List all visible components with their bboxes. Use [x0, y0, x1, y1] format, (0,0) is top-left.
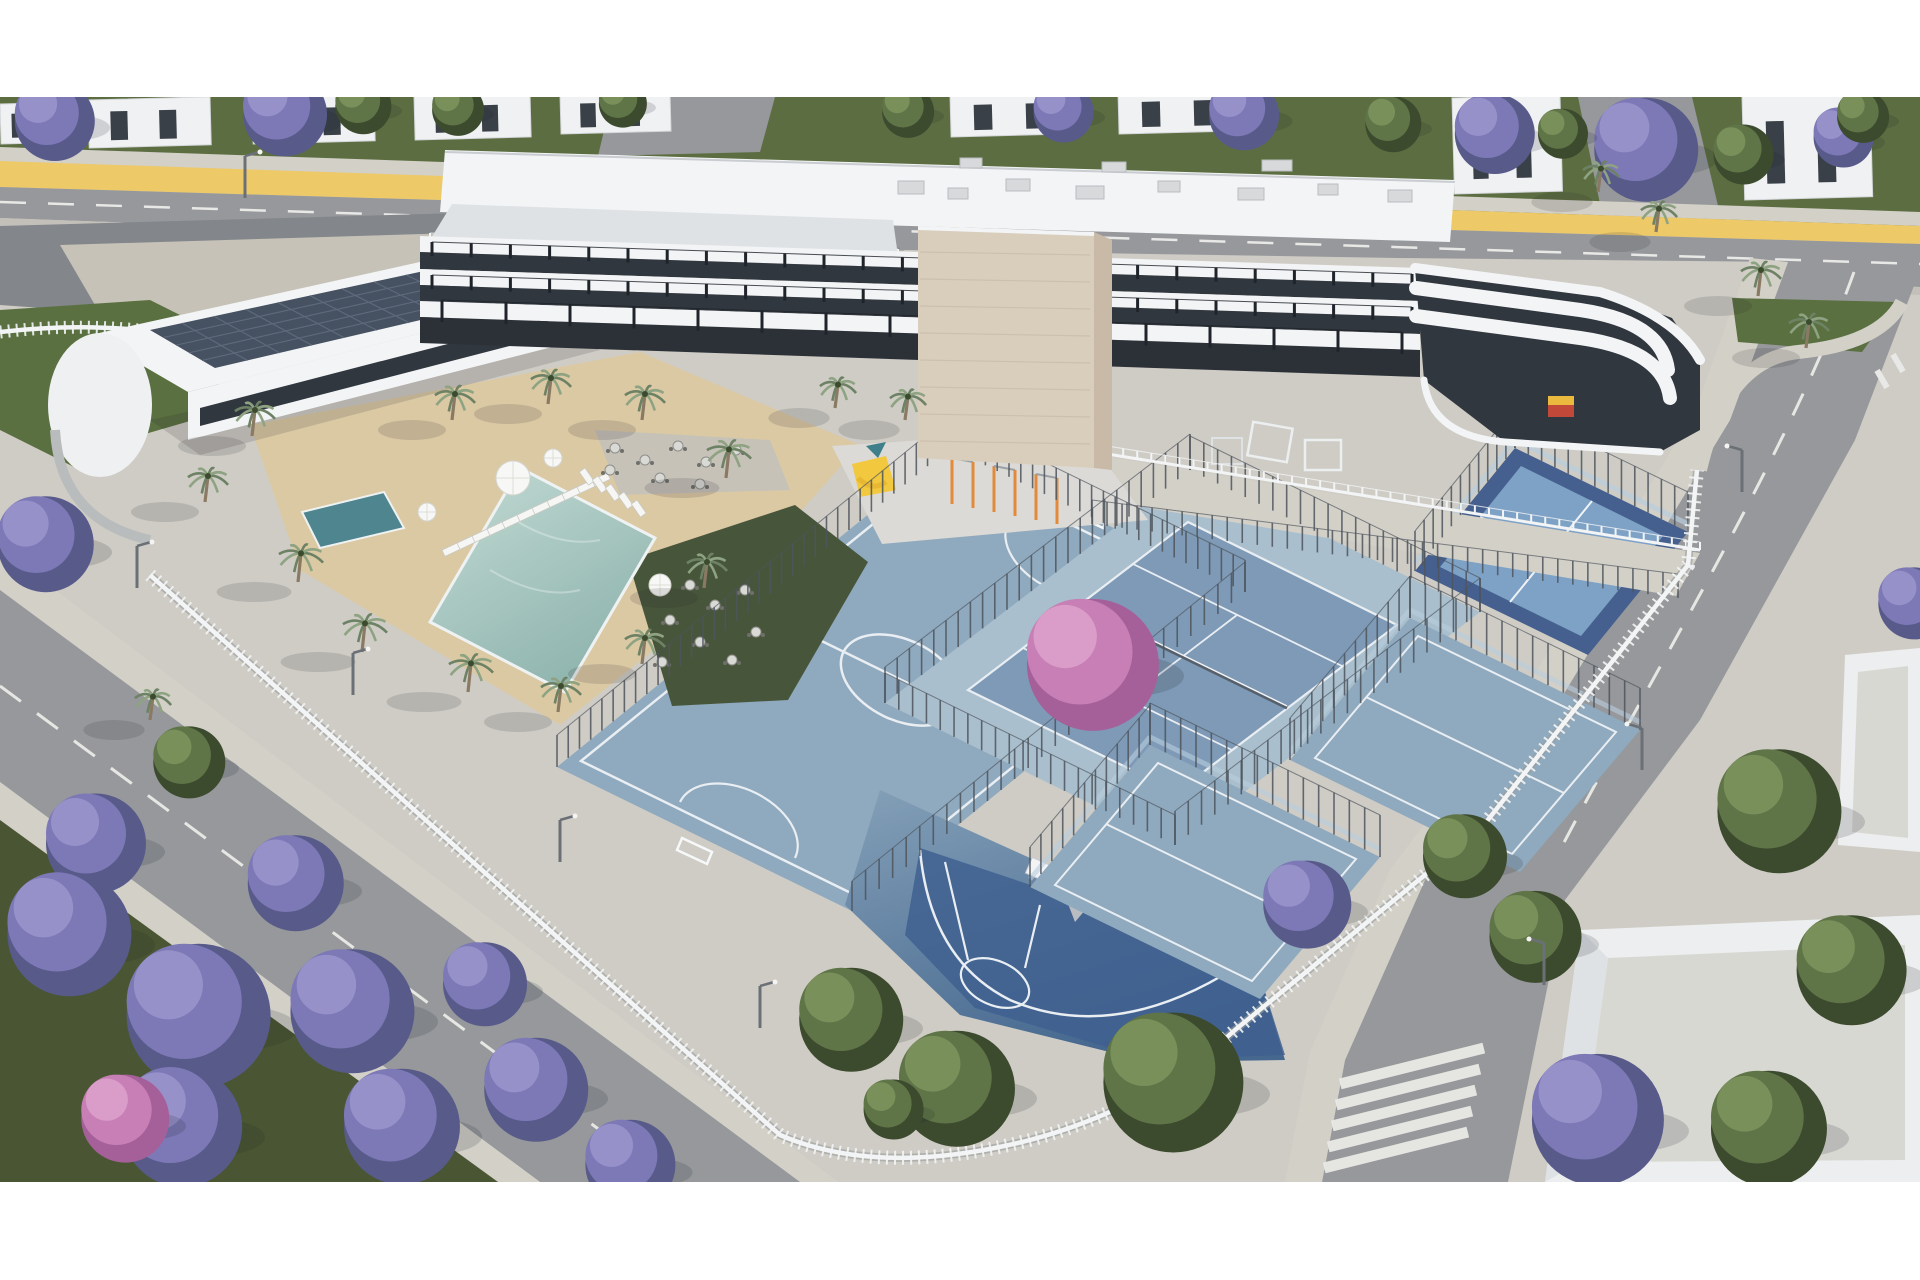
chair [650, 461, 654, 465]
letterbox-bottom [0, 1182, 1920, 1280]
green-tree-highlight [157, 730, 192, 765]
green-tree-highlight [867, 1082, 896, 1111]
curved-west-end [48, 333, 152, 477]
lamp-head [1625, 722, 1630, 727]
chair [706, 606, 710, 610]
palm-crown [1758, 267, 1764, 273]
house-body [88, 97, 211, 148]
pool-umbrella [418, 503, 436, 521]
table-top [665, 615, 675, 625]
chair [636, 461, 640, 465]
palm-shadow [1531, 192, 1592, 212]
jacaranda-tree-highlight [297, 955, 357, 1015]
palm-shadow [1732, 348, 1800, 368]
storefront-sign [1548, 405, 1574, 417]
chair [737, 661, 741, 665]
rooftop-unit [898, 181, 924, 194]
palm-crown [1598, 166, 1604, 172]
house-window [974, 104, 993, 130]
palm-crown [362, 620, 368, 626]
pink-flowering-tree-highlight [1034, 605, 1097, 668]
rooftop-unit [1238, 188, 1264, 200]
green-tree-highlight [1802, 920, 1855, 973]
table-top [685, 580, 695, 590]
green-tree-highlight [1724, 755, 1784, 815]
chair [681, 586, 685, 590]
table-top [727, 655, 737, 665]
jacaranda-tree-highlight [134, 950, 203, 1019]
palm-crown [1656, 206, 1662, 212]
jacaranda-tree-highlight [590, 1124, 633, 1167]
palm-crown [298, 550, 304, 556]
rooftop-unit [1388, 190, 1412, 202]
jacaranda-tree-highlight [1459, 98, 1497, 136]
rooftop-unit [1076, 186, 1104, 199]
chair [695, 586, 699, 590]
house-window [110, 111, 128, 140]
chair [669, 447, 673, 451]
chair [761, 633, 765, 637]
chair [747, 633, 751, 637]
table-top [640, 455, 650, 465]
palm-shadow [768, 408, 829, 428]
lamp-head [773, 980, 778, 985]
chair [675, 621, 679, 625]
palm-shadow [387, 692, 462, 712]
rooftop-unit [1006, 179, 1030, 191]
palm-shadow [474, 404, 542, 424]
table-top [673, 441, 683, 451]
chair [720, 606, 724, 610]
chair [661, 621, 665, 625]
palm-shadow [217, 582, 292, 602]
jacaranda-tree-highlight [14, 878, 74, 938]
lamp-head [366, 647, 371, 652]
palm-shadow [1684, 296, 1752, 316]
pool-umbrella [496, 461, 530, 495]
jacaranda-tree-highlight [1882, 571, 1917, 606]
palm-crown [252, 407, 258, 413]
green-tree-highlight [1717, 1076, 1773, 1132]
jacaranda-tree-highlight [350, 1074, 406, 1130]
rooftop-unit [1158, 181, 1180, 192]
house-window [1142, 101, 1161, 127]
jacaranda-tree-highlight [3, 501, 49, 547]
green-tree-highlight [1368, 99, 1395, 126]
palm-crown [558, 683, 564, 689]
jacaranda-tree-highlight [1599, 102, 1649, 152]
palm-crown [642, 391, 648, 397]
lamp-head [258, 150, 263, 155]
pool-umbrella [544, 449, 562, 467]
palm-shadow [178, 436, 246, 456]
green-tree-highlight [804, 972, 854, 1022]
palm-crown [452, 391, 458, 397]
palm-shadow [378, 420, 446, 440]
lamp-head [573, 814, 578, 819]
storefront-sign-top [1548, 396, 1574, 405]
chair [601, 471, 605, 475]
lamp-head [1725, 444, 1730, 449]
chair [683, 447, 687, 451]
green-tree-highlight [1427, 818, 1467, 858]
green-tree-highlight [905, 1036, 961, 1092]
lamp-head [1527, 937, 1532, 942]
table-top [605, 465, 615, 475]
palm-shadow [83, 720, 144, 740]
palm-shadow [281, 652, 356, 672]
chair [653, 663, 657, 667]
palm-shadow [645, 478, 720, 498]
jacaranda-tree-highlight [253, 840, 299, 886]
jacaranda-tree-highlight [51, 798, 99, 846]
house-window [159, 110, 177, 139]
render-canvas [0, 0, 1920, 1280]
green-tree-highlight [1541, 111, 1565, 135]
palm-crown [726, 446, 732, 452]
green-tree-highlight [1110, 1019, 1177, 1086]
rooftop-unit [948, 188, 968, 199]
palm-crown [835, 382, 841, 388]
chair [705, 643, 709, 647]
palm-crown [905, 394, 911, 400]
stone-tower [918, 226, 1094, 468]
house-window [580, 103, 596, 127]
palm-shadow [484, 712, 552, 732]
palm-crown [548, 375, 554, 381]
table-top [610, 443, 620, 453]
palm-shadow [838, 420, 899, 440]
jacaranda-tree-highlight [1539, 1060, 1602, 1123]
stone-tower-side [1094, 232, 1112, 470]
palm-crown [205, 473, 211, 479]
palm-shadow [630, 588, 698, 608]
table-top [751, 627, 761, 637]
palm-crown [1806, 319, 1812, 325]
neighbor-house [88, 97, 211, 148]
chair [615, 471, 619, 475]
rooftop-unit [1262, 160, 1292, 171]
rooftop-unit [960, 158, 982, 168]
chair [750, 591, 754, 595]
palm-shadow [568, 420, 636, 440]
jacaranda-tree-highlight [1268, 865, 1310, 907]
chair [697, 463, 701, 467]
chair [620, 449, 624, 453]
lamp-head [150, 540, 155, 545]
palm-shadow [568, 664, 636, 684]
chair [711, 463, 715, 467]
chair [606, 449, 610, 453]
aerial-render [0, 0, 1920, 1280]
jacaranda-tree-highlight [447, 946, 487, 986]
rooftop-unit [1102, 162, 1126, 172]
palm-crown [150, 694, 156, 700]
green-tree-highlight [1494, 895, 1538, 939]
palm-shadow [131, 502, 199, 522]
letterbox-top [0, 0, 1920, 97]
palm-shadow [1589, 232, 1650, 252]
jacaranda-tree-highlight [489, 1042, 539, 1092]
palm-crown [704, 559, 710, 565]
palm-crown [468, 660, 474, 666]
chair [723, 661, 727, 665]
rooftop-unit [1318, 184, 1338, 195]
green-tree-highlight [1717, 127, 1746, 156]
pink-flowering-tree-highlight [86, 1079, 128, 1121]
palm-crown [642, 635, 648, 641]
